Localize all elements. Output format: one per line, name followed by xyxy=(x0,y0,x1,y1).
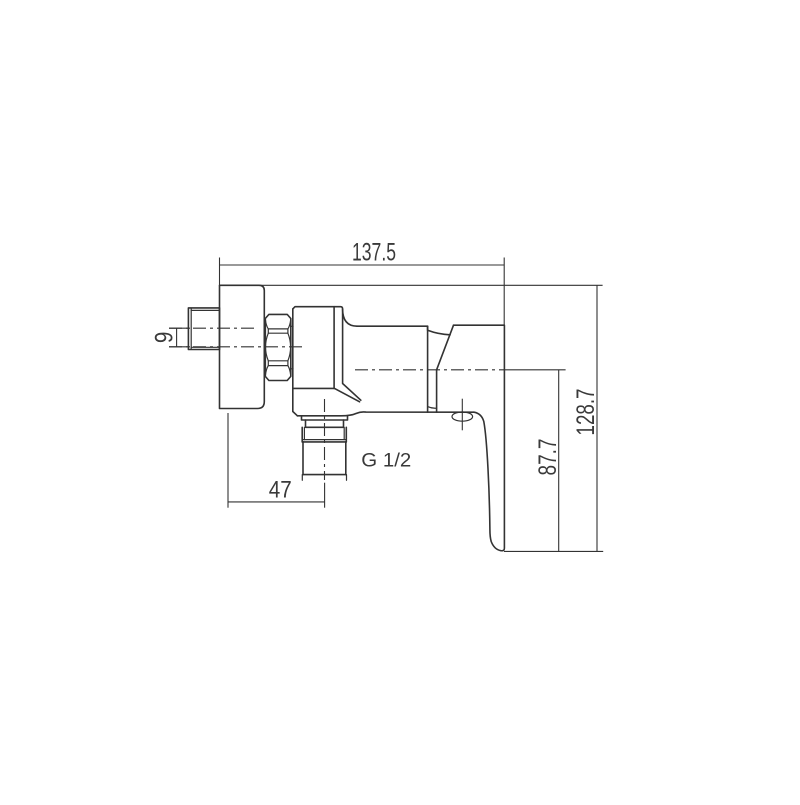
svg-text:G 1/2: G 1/2 xyxy=(361,451,411,472)
svg-text:128.7: 128.7 xyxy=(572,389,600,436)
svg-text:87.7: 87.7 xyxy=(534,439,562,476)
svg-text:9: 9 xyxy=(151,332,179,344)
svg-text:137.5: 137.5 xyxy=(352,239,396,267)
svg-text:47: 47 xyxy=(269,477,292,504)
